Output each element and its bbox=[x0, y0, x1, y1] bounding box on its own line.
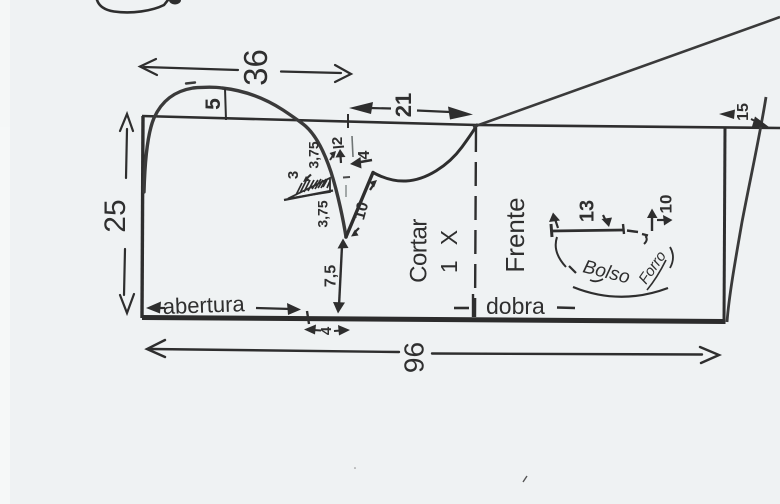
svg-text:3: 3 bbox=[285, 171, 302, 179]
svg-text:abertura: abertura bbox=[162, 291, 246, 319]
svg-text:7,5: 7,5 bbox=[323, 265, 340, 287]
svg-text:dobra: dobra bbox=[486, 293, 545, 319]
svg-text:96: 96 bbox=[398, 342, 429, 373]
svg-text:15: 15 bbox=[735, 103, 752, 121]
svg-text:25: 25 bbox=[99, 199, 132, 232]
svg-text:3,75: 3,75 bbox=[306, 141, 322, 168]
svg-text:4: 4 bbox=[318, 326, 335, 335]
svg-text:3,75: 3,75 bbox=[315, 200, 331, 227]
svg-text:Cortar: Cortar bbox=[405, 219, 432, 283]
svg-text:2: 2 bbox=[329, 137, 346, 145]
svg-text:1X: 1X bbox=[436, 215, 462, 273]
svg-text:5: 5 bbox=[202, 98, 225, 110]
svg-text:13: 13 bbox=[576, 200, 598, 222]
svg-text:21: 21 bbox=[391, 93, 416, 117]
svg-text:4: 4 bbox=[356, 150, 373, 159]
svg-text:Frente: Frente bbox=[500, 197, 530, 272]
svg-text:36: 36 bbox=[237, 49, 274, 86]
svg-text:10: 10 bbox=[656, 195, 675, 214]
